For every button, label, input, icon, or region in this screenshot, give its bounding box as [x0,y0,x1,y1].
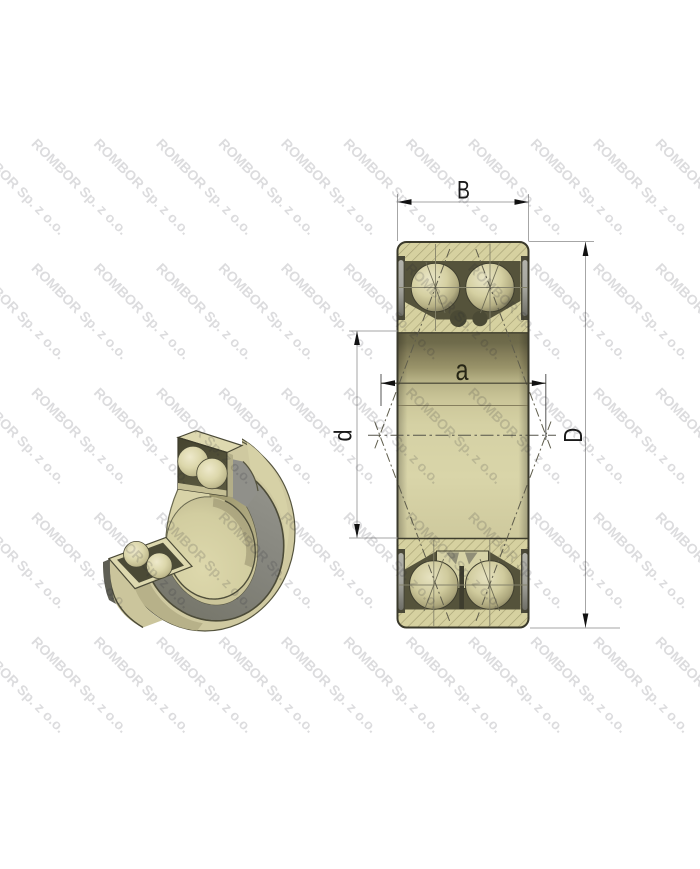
svg-text:a: a [456,354,469,387]
